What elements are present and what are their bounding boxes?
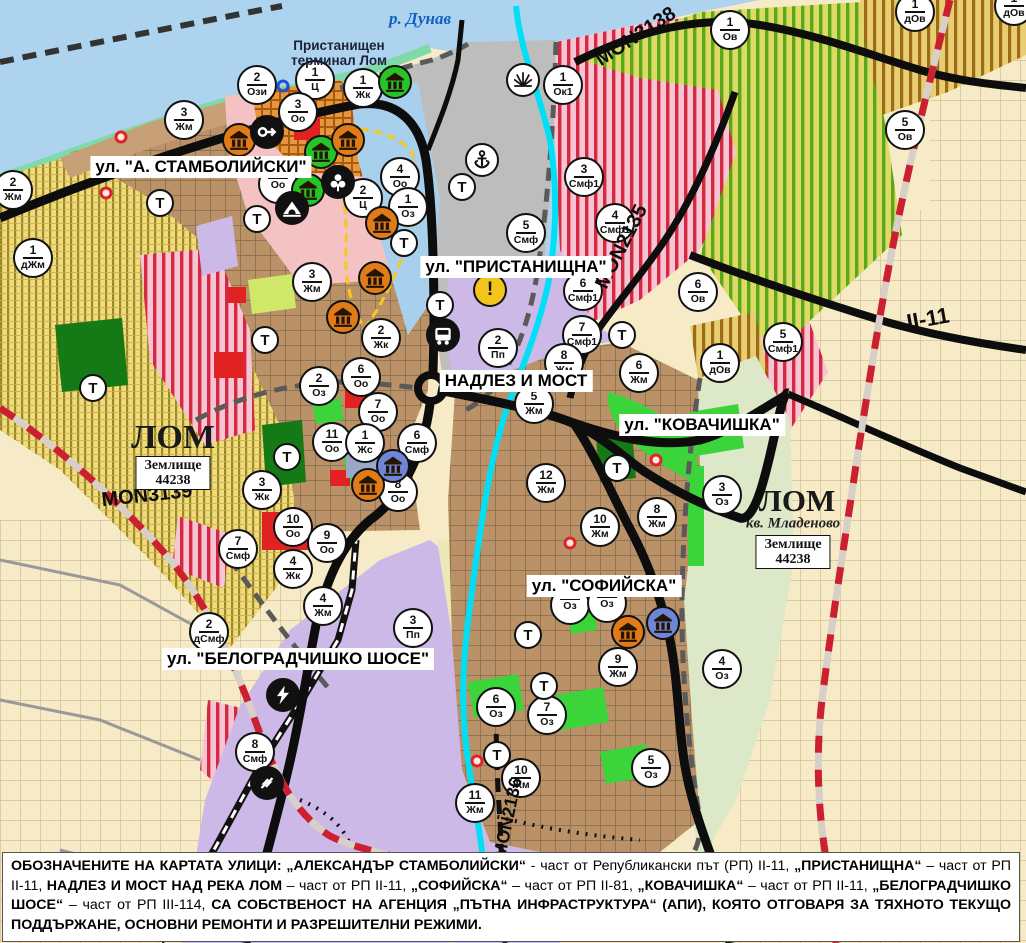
zone-marker: 1Ок1 — [543, 65, 583, 105]
legend-segment: – част от РП II-11, — [743, 878, 872, 894]
zone-code: Жм — [525, 406, 542, 417]
t-circle: Т — [603, 454, 631, 482]
zone-marker: 2Жм — [0, 170, 33, 210]
railnode-icon — [250, 766, 284, 800]
zone-circle: 8Жм — [637, 497, 677, 537]
monument-icon — [376, 449, 410, 483]
zone-circle: 2Оз — [299, 366, 339, 406]
zone-code: Смф1 — [768, 344, 798, 355]
zone-circle: 5Оз — [631, 748, 671, 788]
street-label: ул. "СОФИЙСКА" — [527, 575, 682, 597]
zone-code: Жм — [537, 485, 554, 496]
harbor-icon — [506, 63, 540, 97]
zone-number: 2 — [316, 373, 323, 384]
legend-segment: „СОФИЙСКА“ — [411, 878, 508, 894]
zone-code: Смф1 — [569, 179, 599, 190]
zone-number: 2 — [206, 619, 213, 630]
zone-code: дОв — [709, 365, 730, 376]
zone-number: 5 — [531, 391, 538, 402]
zone-circle: 1дОв — [994, 0, 1026, 26]
zone-circle: 3Смф1 — [564, 157, 604, 197]
zone-code: Пп — [406, 630, 420, 641]
zone-circle: 4Жк — [273, 549, 313, 589]
t-circle: Т — [448, 173, 476, 201]
legend-segment: – част от РП III-114, — [63, 897, 211, 913]
zone-marker: 4Жк — [273, 549, 313, 589]
zone-number: 2 — [495, 335, 502, 346]
zone-marker: 12Жм — [526, 463, 566, 503]
zone-code: Пп — [491, 350, 505, 361]
zone-circle: 3Пп — [393, 608, 433, 648]
river-name-label: р. Дунав — [389, 9, 451, 29]
legend-segment: – част от РП II-11, — [282, 878, 411, 894]
monument-icon-circle — [378, 65, 412, 99]
zone-circle: 1дЖм — [13, 238, 53, 278]
zone-code: Жм — [175, 122, 192, 133]
tunnel-icon — [275, 191, 309, 225]
trefoil-icon — [321, 165, 355, 199]
zone-code: Смф — [514, 235, 538, 246]
zone-circle: 5Смф1 — [763, 322, 803, 362]
monument-icon — [365, 206, 399, 240]
zone-code: Смф1 — [568, 293, 598, 304]
zone-number: 3 — [410, 615, 417, 626]
zone-marker: 7Оз — [527, 695, 567, 735]
monument-icon — [611, 615, 645, 649]
zone-marker: 3Жм — [164, 100, 204, 140]
t-circle: Т — [608, 321, 636, 349]
zone-marker: 5Смф — [506, 213, 546, 253]
zone-marker: 3Жм — [292, 262, 332, 302]
zone-number: 1 — [360, 75, 367, 86]
t-circle: Т — [251, 326, 279, 354]
monument-icon-circle — [326, 300, 360, 334]
zone-number: 2 — [10, 177, 17, 188]
t-circle: Т — [273, 443, 301, 471]
street-label: ул. "КОВАЧИШКА" — [619, 414, 785, 436]
zone-code: Оо — [354, 379, 369, 390]
zone-number: 5 — [780, 329, 787, 340]
zone-code: Оо — [320, 545, 335, 556]
zone-number: 3 — [259, 477, 266, 488]
zone-circle: 5Ов — [885, 110, 925, 150]
red-dot-marker — [650, 454, 663, 467]
railnode-icon-circle — [250, 766, 284, 800]
monument-icon — [358, 261, 392, 295]
legend-segment: - част от Републикански път (РП) II-11, — [526, 858, 794, 874]
zone-circle: 6Оз — [476, 687, 516, 727]
zone-marker: 5Оз — [631, 748, 671, 788]
red-dot-marker — [115, 131, 128, 144]
t-circle: Т — [79, 374, 107, 402]
zone-code: Ози — [247, 87, 267, 98]
t-circle: Т — [530, 672, 558, 700]
zone-code: Жм — [466, 805, 483, 816]
zone-circle: 12Жм — [526, 463, 566, 503]
land-register-line1: Землище — [764, 537, 821, 552]
zone-circle: 11Жм — [455, 783, 495, 823]
zone-marker: 3Жк — [242, 470, 282, 510]
zone-number: 6 — [695, 279, 702, 290]
zone-number: 3 — [309, 269, 316, 280]
zone-code: Ов — [898, 132, 913, 143]
zone-number: 8 — [252, 739, 259, 750]
zone-number: 1 — [30, 245, 37, 256]
zone-number: 9 — [324, 530, 331, 541]
zone-number: 4 — [320, 593, 327, 604]
zone-circle: 3Оз — [702, 475, 742, 515]
zone-marker: 5Смф1 — [763, 322, 803, 362]
legend-segment: „ПРИСТАНИЩНА“ — [794, 858, 921, 874]
zone-code: дЖм — [21, 260, 45, 271]
zone-number: 2 — [360, 185, 367, 196]
zone-circle: 6Жм — [619, 353, 659, 393]
monument-icon — [378, 65, 412, 99]
monument-icon-circle — [611, 615, 645, 649]
zone-number: 4 — [397, 164, 404, 175]
zone-number: 10 — [593, 514, 606, 525]
zone-circle: 5Смф — [506, 213, 546, 253]
zone-number: 1 — [717, 350, 724, 361]
t-marker: Т — [603, 454, 631, 482]
land-register-line2: 44238 — [144, 473, 201, 488]
zone-code: Жм — [648, 519, 665, 530]
city-name-label: ЛОМ — [131, 419, 215, 457]
t-marker: Т — [146, 189, 174, 217]
zone-code: Жм — [303, 284, 320, 295]
zone-code: Оо — [391, 494, 406, 505]
red-dot-marker — [100, 187, 113, 200]
warning-icon-circle: ! — [473, 273, 507, 307]
zone-marker: 11Жм — [455, 783, 495, 823]
zoning-map: 1Ц1Жк2Ози3Оо3Жм2Жм1дЖмОо4Оо2Ц1Оз1Ок13Смф… — [0, 0, 1026, 943]
zone-number: 1 — [405, 194, 412, 205]
legend-segment: „КОВАЧИШКА“ — [638, 878, 744, 894]
zone-code: Жк — [374, 340, 389, 351]
t-marker: Т — [608, 321, 636, 349]
zone-number: 4 — [719, 656, 726, 667]
zone-number: 2 — [378, 325, 385, 336]
monument-icon — [326, 300, 360, 334]
zone-code: Жк — [356, 90, 371, 101]
zone-code: Оз — [715, 671, 728, 682]
zone-number: 7 — [375, 399, 382, 410]
zone-code: дОв — [1003, 8, 1024, 19]
zone-number: 3 — [181, 107, 188, 118]
zone-marker: 6Оз — [476, 687, 516, 727]
t-circle: Т — [514, 621, 542, 649]
zone-code: Жм — [609, 669, 626, 680]
street-label: ул. "А. СТАМБОЛИЙСКИ" — [90, 156, 311, 178]
zone-code: дОв — [904, 14, 925, 25]
zone-circle: 2Пп — [478, 328, 518, 368]
zone-number: 11 — [469, 790, 482, 801]
legend-segment: – част от РП II-81, — [508, 878, 638, 894]
zone-code: Оз — [401, 209, 414, 220]
anchor-icon — [465, 143, 499, 177]
zone-marker: 4Жм — [303, 586, 343, 626]
zone-marker: 1дОв — [994, 0, 1026, 26]
zone-marker: 6Оо — [341, 357, 381, 397]
zone-number: 3 — [581, 164, 588, 175]
anchor-icon-circle — [465, 143, 499, 177]
city-name-label: ЛОМ — [759, 483, 835, 519]
zone-number: 6 — [580, 278, 587, 289]
zone-code: Оо — [271, 180, 286, 191]
legend-segment: ОБОЗНАЧЕНИТЕ НА КАРТАТА УЛИЦИ: „АЛЕКСАНД… — [11, 858, 526, 874]
quarter-name-label: кв. Младеново — [746, 516, 840, 533]
zone-circle: 2Ози — [237, 65, 277, 105]
zone-marker: 8Жм — [637, 497, 677, 537]
zone-marker: 6Ов — [678, 272, 718, 312]
zone-marker: 7Смф — [218, 529, 258, 569]
zone-number: 6 — [636, 360, 643, 371]
lightning-icon — [266, 678, 300, 712]
zone-circle: 3Жк — [242, 470, 282, 510]
zone-number: 6 — [414, 430, 421, 441]
zone-code: Жк — [286, 571, 301, 582]
land-register-line1: Землище — [144, 458, 201, 473]
t-marker: Т — [483, 741, 511, 769]
zone-code: Жм — [591, 529, 608, 540]
monument-icon — [646, 606, 680, 640]
zone-circle: 2дСмф — [189, 612, 229, 652]
zone-code: Оз — [644, 770, 657, 781]
port-terminal-label: Пристанищен терминал Лом — [291, 38, 387, 68]
t-marker: Т — [448, 173, 476, 201]
harbor-icon-circle — [506, 63, 540, 97]
zone-number: 1 — [312, 67, 319, 78]
zone-code: Жс — [357, 445, 372, 456]
t-marker: Т — [243, 205, 271, 233]
zone-circle: 3Жм — [292, 262, 332, 302]
zone-marker: 1Ов — [710, 10, 750, 50]
zone-circle: 6Ов — [678, 272, 718, 312]
t-marker: Т — [251, 326, 279, 354]
key-icon — [250, 115, 284, 149]
zone-marker: 1Жк — [343, 68, 383, 108]
zone-circle: 1Ок1 — [543, 65, 583, 105]
zone-code: Оз — [600, 599, 613, 610]
land-register-line2: 44238 — [764, 552, 821, 567]
zone-number: 8 — [561, 350, 568, 361]
zone-number: 8 — [654, 504, 661, 515]
zone-number: 5 — [902, 117, 909, 128]
t-circle: Т — [146, 189, 174, 217]
zone-marker: 1дОв — [895, 0, 935, 32]
zone-circle: 7Оз — [527, 695, 567, 735]
zone-number: 7 — [544, 702, 551, 713]
zone-number: 5 — [648, 755, 655, 766]
lightning-icon-circle — [266, 678, 300, 712]
zone-circle: 1Жк — [343, 68, 383, 108]
zone-circle: 10Жм — [580, 507, 620, 547]
monument-icon — [331, 123, 365, 157]
zone-number: 1 — [912, 0, 919, 10]
zone-marker: 2Ози — [237, 65, 277, 105]
zone-code: Оз — [312, 388, 325, 399]
zone-code: Оз — [563, 601, 576, 612]
zone-number: 4 — [290, 556, 297, 567]
zone-marker: 2Жк — [361, 318, 401, 358]
warning-icon: ! — [473, 273, 507, 307]
t-marker: Т — [530, 672, 558, 700]
monument-icon-circle — [331, 123, 365, 157]
zone-marker: 2Пп — [478, 328, 518, 368]
t-marker: Т — [79, 374, 107, 402]
trefoil-icon-circle — [321, 165, 355, 199]
legend-text-box: ОБОЗНАЧЕНИТЕ НА КАРТАТА УЛИЦИ: „АЛЕКСАНД… — [2, 852, 1020, 942]
zone-number: 3 — [719, 482, 726, 493]
zone-marker: 2дСмф — [189, 612, 229, 652]
zone-code: Оо — [291, 114, 306, 125]
zone-number: 10 — [514, 765, 527, 776]
t-circle: Т — [243, 205, 271, 233]
zone-code: Ов — [723, 32, 738, 43]
zone-number: 7 — [235, 536, 242, 547]
zone-circle: 9Жм — [598, 647, 638, 687]
zone-number: 11 — [326, 429, 339, 440]
monument-icon-circle — [376, 449, 410, 483]
zone-number: 9 — [615, 654, 622, 665]
zone-number: 5 — [523, 220, 530, 231]
zone-number: 7 — [579, 322, 586, 333]
zone-code: Оз — [715, 497, 728, 508]
zone-circle: 1Ов — [710, 10, 750, 50]
red-dot-marker — [564, 537, 577, 550]
zone-number: 6 — [493, 694, 500, 705]
zone-marker: 9Жм — [598, 647, 638, 687]
zone-marker: 4Оз — [702, 649, 742, 689]
zone-code: Смф — [243, 754, 267, 765]
zone-circle: 1дОв — [895, 0, 935, 32]
key-icon-circle — [250, 115, 284, 149]
zone-number: 1 — [727, 17, 734, 28]
zone-marker: 3Оз — [702, 475, 742, 515]
t-circle: Т — [483, 741, 511, 769]
t-marker: Т — [273, 443, 301, 471]
zone-circle: 7Смф — [218, 529, 258, 569]
zone-marker: 1дЖм — [13, 238, 53, 278]
zone-circle: 4Оз — [702, 649, 742, 689]
zone-number: 1 — [362, 430, 369, 441]
zone-number: 1 — [560, 72, 567, 83]
zone-code: Оо — [286, 529, 301, 540]
legend-segment: НАДЛЕЗ И МОСТ НАД РЕКА ЛОМ — [47, 878, 282, 894]
zone-marker: 2Оз — [299, 366, 339, 406]
zone-circle: 6Оо — [341, 357, 381, 397]
monument-icon-circle — [365, 206, 399, 240]
zone-number: 2 — [254, 72, 261, 83]
bus-icon-circle — [426, 318, 460, 352]
zone-marker: 6Жм — [619, 353, 659, 393]
zone-number: 4 — [612, 210, 619, 221]
monument-icon-circle — [358, 261, 392, 295]
zone-code: Ов — [691, 294, 706, 305]
zone-number: 10 — [286, 514, 299, 525]
zone-code: Жм — [630, 375, 647, 386]
t-circle: Т — [426, 291, 454, 319]
zone-code: Оз — [489, 709, 502, 720]
land-register-box: Землище44238 — [135, 456, 210, 490]
t-marker: Т — [514, 621, 542, 649]
blue-ring-marker — [277, 80, 290, 93]
zone-code: Жк — [255, 492, 270, 503]
zone-marker: 3Оо — [278, 92, 318, 132]
red-dot-marker — [471, 755, 484, 768]
zone-marker: 1дОв — [700, 343, 740, 383]
zone-number: 12 — [539, 470, 552, 481]
zone-circle: 4Жм — [303, 586, 343, 626]
zone-marker: 9Оо — [307, 523, 347, 563]
zone-code: Оз — [540, 717, 553, 728]
zone-marker: 10Жм — [580, 507, 620, 547]
zone-marker: 3Смф1 — [564, 157, 604, 197]
zone-number: 1 — [1011, 0, 1018, 4]
zone-code: Оо — [325, 444, 340, 455]
zone-code: Ок1 — [553, 87, 572, 98]
street-label: ул. "БЕЛОГРАДЧИШКО ШОСЕ" — [162, 648, 434, 670]
monument-icon-circle — [646, 606, 680, 640]
zone-code: Смф — [226, 551, 250, 562]
zone-marker: 5Ов — [885, 110, 925, 150]
zone-circle: 3Жм — [164, 100, 204, 140]
tunnel-icon-circle — [275, 191, 309, 225]
zone-circle: 2Жм — [0, 170, 33, 210]
zone-marker: 3Пп — [393, 608, 433, 648]
zone-circle: 9Оо — [307, 523, 347, 563]
zone-circle: 1дОв — [700, 343, 740, 383]
street-label: НАДЛЕЗ И МОСТ — [440, 370, 593, 392]
zone-code: Жм — [314, 608, 331, 619]
zone-circle: 3Оо — [278, 92, 318, 132]
zone-number: 6 — [358, 364, 365, 375]
street-label: ул. "ПРИСТАНИЩНА" — [420, 256, 611, 278]
bus-icon — [426, 318, 460, 352]
zone-code: Жм — [4, 192, 21, 203]
zone-circle: 2Жк — [361, 318, 401, 358]
zone-number: 3 — [295, 99, 302, 110]
zone-code: дСмф — [193, 634, 224, 645]
t-marker: Т — [426, 291, 454, 319]
land-register-box: Землище44238 — [755, 535, 830, 569]
